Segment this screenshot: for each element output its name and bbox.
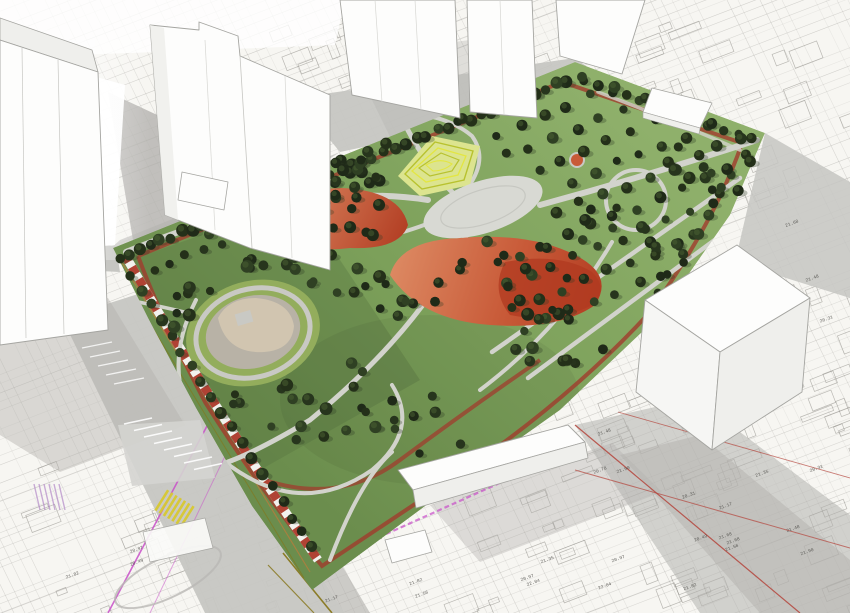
tree xyxy=(632,205,641,214)
tree xyxy=(699,162,709,172)
tree xyxy=(231,390,239,398)
tree xyxy=(358,367,367,376)
tree xyxy=(361,282,369,290)
tree xyxy=(258,260,268,270)
tree xyxy=(151,266,160,275)
tree xyxy=(568,251,577,260)
tree xyxy=(520,327,528,335)
tree xyxy=(494,258,502,266)
tree xyxy=(376,304,385,313)
tree xyxy=(557,287,566,296)
tree xyxy=(503,282,513,292)
tree xyxy=(593,113,603,123)
tree xyxy=(391,425,400,434)
tree xyxy=(125,271,134,280)
tree xyxy=(116,254,126,264)
tree xyxy=(610,290,619,299)
tree xyxy=(679,258,688,267)
tower-west xyxy=(0,18,108,345)
tree xyxy=(719,126,728,135)
tree xyxy=(165,260,173,268)
tree xyxy=(656,272,665,281)
tree xyxy=(173,292,181,300)
tree xyxy=(708,198,718,208)
tree xyxy=(541,85,550,94)
tree xyxy=(618,236,627,245)
tree xyxy=(563,274,572,283)
tree xyxy=(593,242,602,251)
tree xyxy=(574,197,583,206)
tree xyxy=(502,149,511,158)
tree xyxy=(229,400,238,409)
tree xyxy=(598,344,608,354)
tree xyxy=(175,348,184,357)
masterplan-image: 21.4821.9020.3121.6820.4921.8220.9721.35… xyxy=(0,0,850,613)
tree xyxy=(492,132,500,140)
tree xyxy=(206,287,214,295)
tree xyxy=(578,235,588,245)
tree xyxy=(456,439,465,448)
tree xyxy=(307,279,316,288)
tree xyxy=(297,526,307,536)
tree xyxy=(292,435,301,444)
tree xyxy=(165,234,175,244)
park-masterplan-rendering: 21.4821.9020.3121.6820.4921.8220.9721.35… xyxy=(0,0,850,613)
tree xyxy=(430,297,440,307)
tree xyxy=(536,166,545,175)
tree xyxy=(586,89,595,98)
tree xyxy=(619,105,627,113)
tree xyxy=(382,280,390,288)
tree xyxy=(361,408,370,417)
tree xyxy=(402,297,410,305)
tree xyxy=(626,259,635,268)
tree xyxy=(499,251,508,260)
tree xyxy=(590,297,599,306)
tree xyxy=(612,204,620,212)
tree xyxy=(173,309,182,318)
tree xyxy=(200,245,209,254)
tree xyxy=(428,392,437,401)
tree xyxy=(415,449,423,457)
tree xyxy=(371,173,380,182)
tree xyxy=(608,224,617,233)
tree xyxy=(523,144,532,153)
tree xyxy=(188,361,198,371)
tree xyxy=(674,142,683,151)
tree xyxy=(357,155,366,164)
tree xyxy=(686,208,694,216)
tree xyxy=(635,150,643,158)
tree xyxy=(613,157,621,165)
tree xyxy=(548,306,556,314)
tree xyxy=(268,481,278,491)
tree xyxy=(622,90,632,100)
tree xyxy=(577,72,587,82)
tree xyxy=(708,185,717,194)
tree xyxy=(626,127,635,136)
tree xyxy=(662,215,670,223)
tree xyxy=(457,258,466,267)
tree xyxy=(387,396,397,406)
tree xyxy=(146,299,156,309)
tree xyxy=(267,422,275,430)
tree xyxy=(586,205,596,215)
tree xyxy=(678,183,686,191)
tree xyxy=(507,303,516,312)
tree xyxy=(717,183,726,192)
tree xyxy=(180,250,189,259)
tree xyxy=(333,288,342,297)
tree xyxy=(218,240,226,248)
tree xyxy=(390,416,399,425)
tree xyxy=(347,204,356,213)
tree xyxy=(515,252,525,262)
